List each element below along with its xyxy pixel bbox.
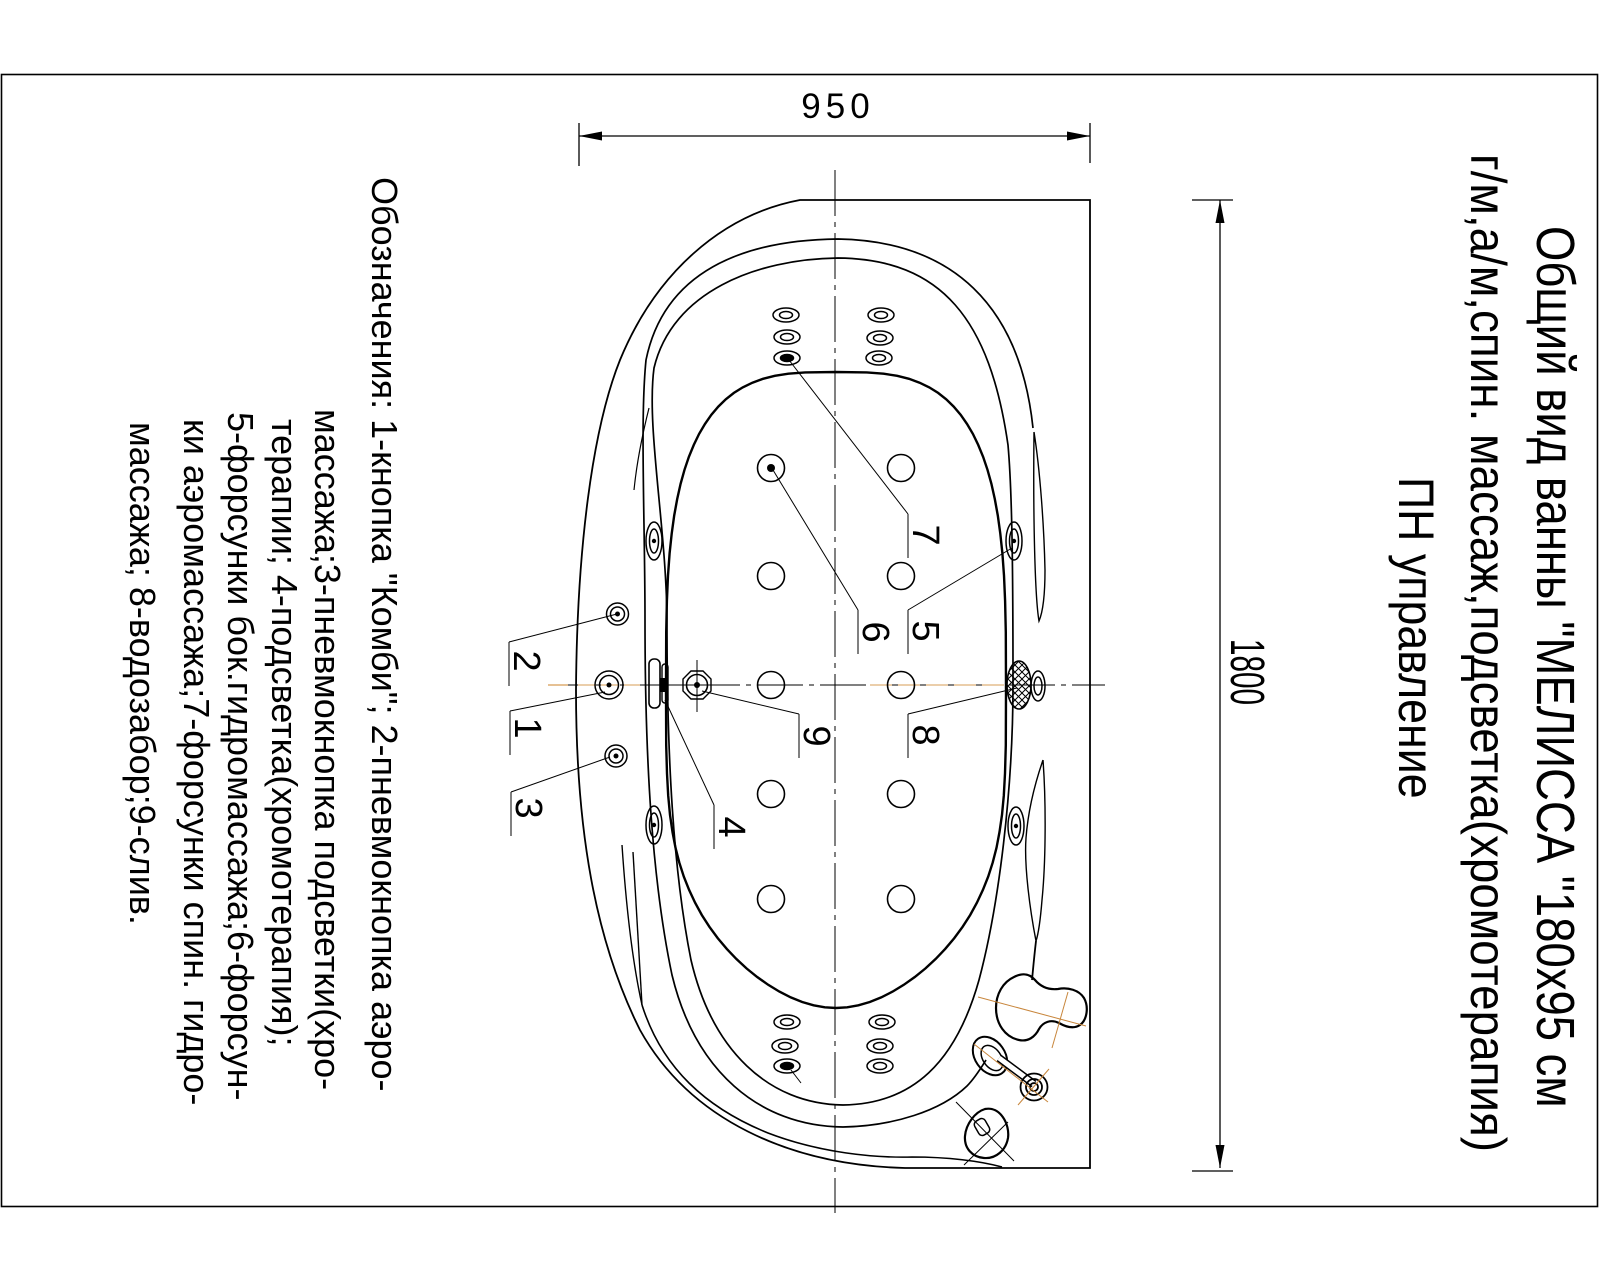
svg-text:7: 7: [904, 524, 946, 545]
svg-text:3: 3: [507, 797, 549, 818]
svg-text:1800: 1800: [1220, 639, 1273, 705]
svg-text:8: 8: [904, 724, 946, 745]
svg-text:2: 2: [505, 650, 547, 671]
svg-text:массажа;3-пневмокнопка подсвет: массажа;3-пневмокнопка подсветки(хро-: [307, 409, 348, 1090]
svg-text:Общий вид ванны "МЕЛИССА "180х: Общий вид ванны "МЕЛИССА "180х95 см: [1525, 226, 1586, 1108]
svg-text:терапии; 4-подсветка(хромотера: терапии; 4-подсветка(хромотерапия);: [264, 419, 305, 1046]
svg-text:г/м,а/м,спин. массаж,подсветка: г/м,а/м,спин. массаж,подсветка(хромотера…: [1460, 154, 1515, 1152]
svg-text:1: 1: [506, 717, 548, 738]
svg-text:Обозначения: 1-кнопка "Комби";: Обозначения: 1-кнопка "Комби"; 2-пневмок…: [364, 177, 405, 1092]
svg-text:ки аэромассажа;7-форсунки спин: ки аэромассажа;7-форсунки спин. гидро-: [176, 419, 217, 1105]
svg-text:ПН управление: ПН управление: [1387, 477, 1443, 799]
svg-text:9: 9: [795, 725, 837, 746]
svg-text:5: 5: [904, 620, 946, 641]
svg-text:4: 4: [710, 816, 752, 837]
svg-text:950: 950: [801, 87, 874, 126]
svg-text:5-форсунки бок.гидромассажа;6-: 5-форсунки бок.гидромассажа;6-форсун-: [220, 412, 261, 1101]
svg-text:массажа; 8-водозабор;9-слив.: массажа; 8-водозабор;9-слив.: [122, 422, 163, 925]
svg-text:6: 6: [854, 621, 896, 642]
